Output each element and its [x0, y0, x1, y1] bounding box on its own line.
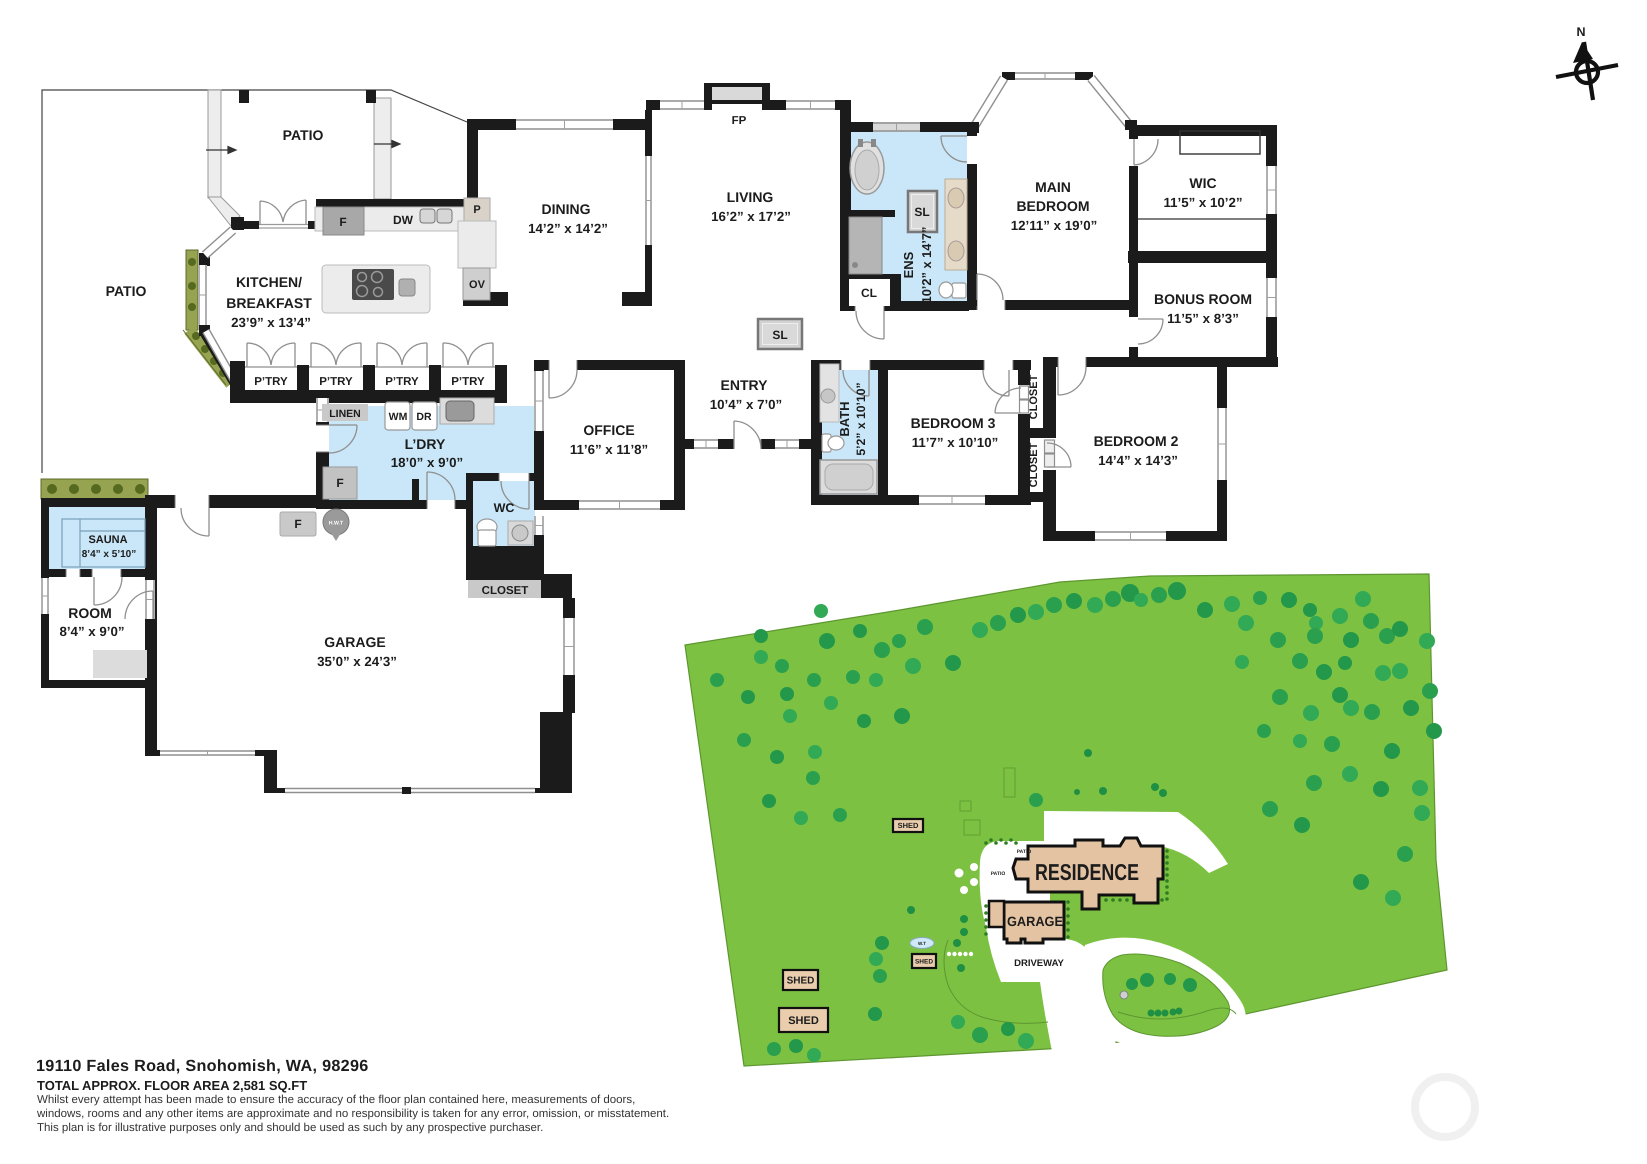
svg-text:SHED: SHED	[915, 958, 933, 965]
svg-text:CL: CL	[861, 286, 877, 300]
svg-text:BEDROOM 2: BEDROOM 2	[1094, 433, 1179, 449]
svg-text:OV: OV	[469, 279, 486, 291]
svg-text:TOTAL APPROX. FLOOR AREA 2,581: TOTAL APPROX. FLOOR AREA 2,581 SQ.FT	[37, 1078, 307, 1093]
svg-text:SHED: SHED	[788, 1015, 819, 1027]
svg-text:23’9” x 13’4”: 23’9” x 13’4”	[231, 315, 311, 330]
svg-text:GARAGE: GARAGE	[1007, 914, 1063, 929]
svg-text:BEDROOM 3: BEDROOM 3	[911, 415, 996, 431]
svg-text:BONUS ROOM: BONUS ROOM	[1154, 291, 1252, 307]
svg-text:BATH: BATH	[837, 401, 852, 436]
svg-text:11’7” x 10’10”: 11’7” x 10’10”	[912, 435, 999, 450]
svg-text:WIC: WIC	[1189, 175, 1216, 191]
svg-text:CLOSET: CLOSET	[482, 585, 529, 597]
svg-text:CLOSET: CLOSET	[1028, 442, 1040, 487]
svg-text:Whilst every attempt has been: Whilst every attempt has been made to en…	[37, 1094, 635, 1106]
svg-text:F: F	[294, 517, 301, 531]
svg-text:H.W.T: H.W.T	[329, 521, 344, 527]
svg-text:WM: WM	[389, 411, 408, 423]
svg-text:CLOSET: CLOSET	[1028, 374, 1040, 419]
svg-text:KITCHEN/: KITCHEN/	[236, 274, 302, 290]
svg-text:PATIO: PATIO	[991, 871, 1006, 877]
svg-text:GARAGE: GARAGE	[324, 634, 385, 650]
svg-text:10’2” x 14’7”: 10’2” x 14’7”	[919, 227, 934, 304]
svg-text:DW: DW	[393, 213, 414, 227]
svg-text:BEDROOM: BEDROOM	[1016, 198, 1089, 214]
svg-text:11’5” x 8’3”: 11’5” x 8’3”	[1167, 311, 1239, 326]
svg-text:8’4” x 9’0”: 8’4” x 9’0”	[59, 624, 124, 639]
svg-text:DRIVEWAY: DRIVEWAY	[1014, 958, 1064, 969]
svg-text:PATIO: PATIO	[283, 127, 324, 143]
svg-text:SHED: SHED	[787, 976, 815, 987]
svg-text:PATIO: PATIO	[106, 283, 147, 299]
svg-text:P’TRY: P’TRY	[385, 376, 419, 388]
svg-text:SL: SL	[772, 328, 787, 342]
svg-text:P’TRY: P’TRY	[254, 376, 288, 388]
svg-text:12’11” x 19’0”: 12’11” x 19’0”	[1011, 218, 1098, 233]
svg-text:ROOM: ROOM	[68, 605, 112, 621]
svg-text:11’5” x 10’2”: 11’5” x 10’2”	[1163, 195, 1242, 210]
svg-text:LINEN: LINEN	[329, 408, 361, 420]
svg-text:OFFICE: OFFICE	[583, 422, 634, 438]
svg-text:14’2” x 14’2”: 14’2” x 14’2”	[528, 221, 608, 236]
svg-text:19110 Fales Road, Snohomish, W: 19110 Fales Road, Snohomish, WA, 98296	[36, 1057, 369, 1075]
svg-text:P’TRY: P’TRY	[451, 376, 485, 388]
svg-text:16’2” x 17’2”: 16’2” x 17’2”	[711, 209, 791, 224]
svg-text:P’TRY: P’TRY	[319, 376, 353, 388]
svg-text:WC: WC	[494, 501, 515, 515]
svg-text:This plan is for illustrative: This plan is for illustrative purposes o…	[37, 1122, 543, 1134]
svg-text:10’4” x 7’0”: 10’4” x 7’0”	[710, 397, 782, 412]
svg-text:ENTRY: ENTRY	[721, 377, 769, 393]
svg-text:DINING: DINING	[542, 201, 591, 217]
svg-text:11’6” x 11’8”: 11’6” x 11’8”	[570, 442, 648, 457]
svg-text:F: F	[336, 476, 343, 490]
svg-text:BREAKFAST: BREAKFAST	[226, 295, 312, 311]
svg-text:8’4” x 5’10”: 8’4” x 5’10”	[82, 549, 136, 560]
svg-text:DR: DR	[416, 411, 432, 423]
svg-text:RESIDENCE: RESIDENCE	[1035, 859, 1139, 885]
svg-text:N: N	[1576, 25, 1585, 39]
svg-text:MAIN: MAIN	[1035, 179, 1071, 195]
svg-text:L’DRY: L’DRY	[405, 436, 446, 452]
svg-text:FP: FP	[732, 115, 747, 127]
svg-text:SAUNA: SAUNA	[88, 534, 127, 546]
svg-text:SL: SL	[914, 205, 929, 219]
svg-text:PATIO: PATIO	[1017, 849, 1032, 855]
svg-text:35’0” x 24’3”: 35’0” x 24’3”	[317, 654, 397, 669]
svg-text:18’0” x 9’0”: 18’0” x 9’0”	[391, 455, 463, 470]
svg-text:ENS: ENS	[901, 251, 916, 278]
svg-text:W.T: W.T	[918, 941, 926, 946]
svg-text:windows, rooms and any other i: windows, rooms and any other items are a…	[36, 1108, 669, 1120]
svg-text:P: P	[473, 204, 480, 216]
svg-text:5’2” x 10’10”: 5’2” x 10’10”	[854, 382, 868, 455]
svg-text:SHED: SHED	[898, 821, 919, 830]
svg-text:LIVING: LIVING	[727, 189, 774, 205]
svg-text:F: F	[339, 215, 346, 229]
svg-text:14’4” x 14’3”: 14’4” x 14’3”	[1098, 453, 1178, 468]
